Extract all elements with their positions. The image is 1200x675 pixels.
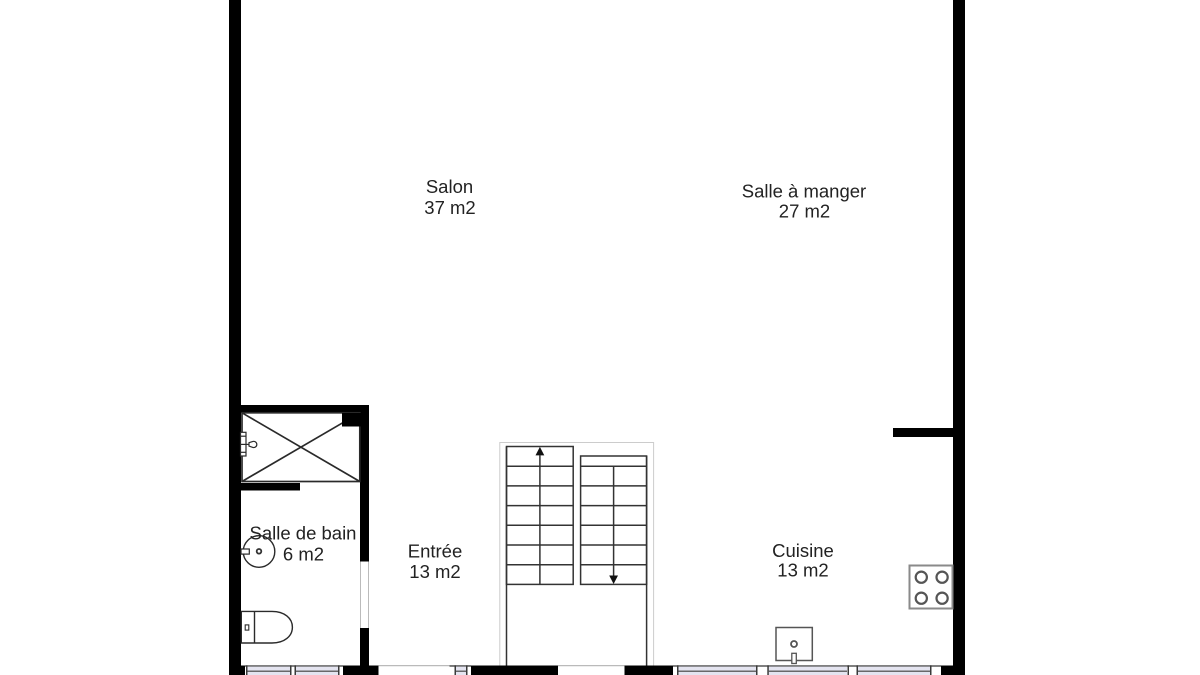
svg-text:13 m2: 13 m2 <box>409 561 460 582</box>
svg-text:Salle de bain: Salle de bain <box>250 522 357 543</box>
svg-text:37 m2: 37 m2 <box>424 197 475 218</box>
svg-text:27 m2: 27 m2 <box>779 201 830 222</box>
svg-text:6 m2: 6 m2 <box>283 544 324 565</box>
svg-text:Cuisine: Cuisine <box>772 540 834 561</box>
svg-text:13 m2: 13 m2 <box>777 560 828 581</box>
svg-text:Salle à manger: Salle à manger <box>742 181 866 202</box>
svg-text:Salon: Salon <box>426 176 473 197</box>
svg-text:Entrée: Entrée <box>408 541 463 562</box>
